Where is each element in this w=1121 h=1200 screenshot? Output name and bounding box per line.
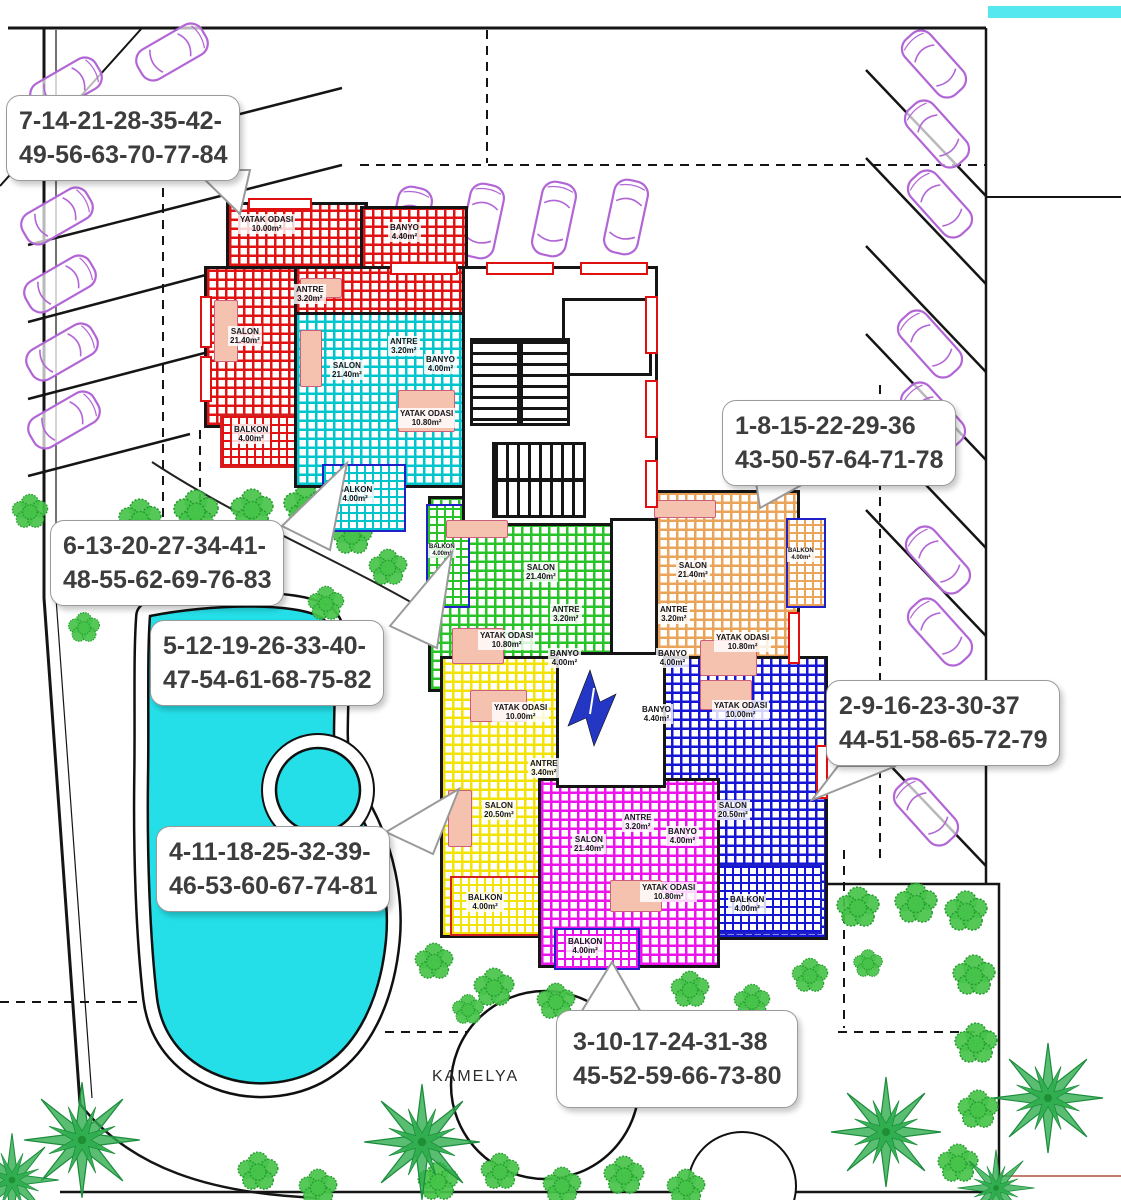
callout-pointer (812, 766, 896, 800)
callout-pointer (390, 552, 452, 648)
callout-line-3: 3-10-17-24-31-3845-52-59-66-73-80 (556, 1010, 798, 1108)
callout-line-6: 6-13-20-27-34-41-48-55-62-69-76-83 (50, 520, 284, 606)
callout-line-1: 1-8-15-22-29-3643-50-57-64-71-78 (722, 400, 956, 486)
north-arrow-icon (568, 670, 616, 746)
callout-pointer (580, 962, 642, 1014)
callout-pointer (386, 789, 459, 854)
callout-line-4: 4-11-18-25-32-39-46-53-60-67-74-81 (156, 826, 390, 912)
callout-line-2: 2-9-16-23-30-3744-51-58-65-72-79 (826, 680, 1060, 766)
site-plan-canvas: YATAK ODASI10.00m² BANYO4.40m² ANTRE3.20… (0, 0, 1121, 1200)
callout-line-7: 7-14-21-28-35-42-49-56-63-70-77-84 (6, 95, 240, 181)
callout-line-5: 5-12-19-26-33-40-47-54-61-68-75-82 (150, 620, 384, 706)
callout-pointer (282, 463, 347, 550)
